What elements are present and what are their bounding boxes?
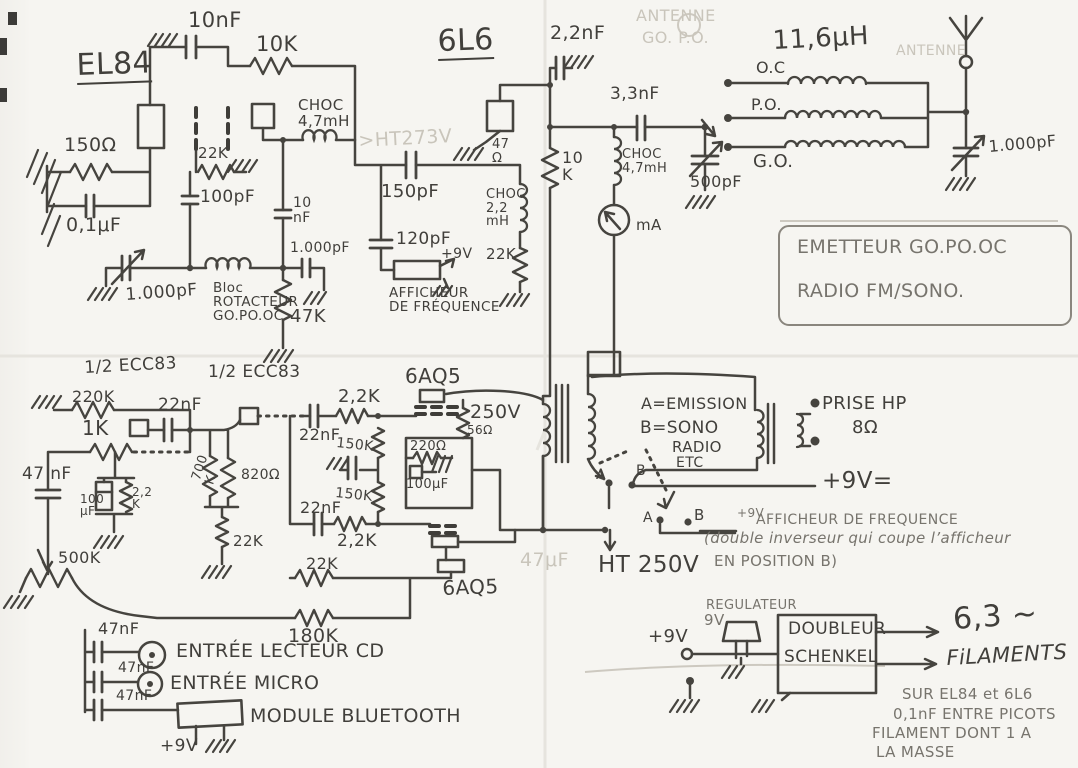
coil-symbols — [785, 77, 905, 147]
label-63v: 6,3 ∼ — [952, 598, 1038, 635]
ground-symbols — [946, 178, 975, 190]
speaker-transformer-primary — [757, 410, 764, 458]
label-choke-47mh-2: CHOC 4,7mH — [622, 148, 667, 175]
label-r150ohm: 150Ω — [64, 136, 116, 156]
label-r1k: 1K — [82, 418, 109, 439]
label-8ohm: 8Ω — [852, 419, 878, 438]
label-r820ohm: 820Ω — [241, 468, 280, 483]
coil-terminal — [724, 79, 732, 87]
label-po: P.O. — [751, 97, 782, 114]
label-note1: SUR EL84 et 6L6 — [902, 687, 1033, 703]
label-ghost-antenne-right: ANTENNE — [896, 44, 966, 59]
label-6aq5-1: 6AQ5 — [405, 366, 461, 387]
label-module-bt: MODULE BLUETOOTH — [250, 707, 461, 727]
label-plus9v-eq: +9V= — [822, 470, 893, 494]
label-afficheur: AFFICHEUR DE FRÉQUENCE — [389, 286, 500, 314]
afficheur-box — [394, 261, 440, 279]
label-c10nf2: 10 nF — [293, 196, 312, 225]
label-r47k: 47K — [290, 308, 326, 327]
title-box-line1: EMETTEUR GO.PO.OC — [797, 238, 1007, 258]
junction-dot — [602, 527, 608, 533]
ground-terminal — [686, 677, 694, 685]
output-transformer-secondary — [588, 394, 595, 459]
tube-plate-box — [252, 104, 274, 128]
label-coil-116uh: 11,6μH — [772, 23, 870, 55]
label-plus9v-bt: +9V — [160, 738, 198, 756]
label-6aq5-2: 6AQ5 — [442, 576, 499, 599]
label-choke-22mh: CHOC 2,2 mH — [486, 188, 526, 229]
label-r150k1: 150K — [335, 436, 374, 454]
tube-grid-box — [487, 101, 513, 131]
label-doubleur: DOUBLEUR — [788, 621, 886, 639]
label-prise-hp: PRISE HP — [822, 395, 907, 414]
label-c47nf1: 47nF — [98, 621, 139, 638]
label-r22k2: 22K — [306, 556, 338, 573]
label-switch-a1: A — [596, 468, 606, 483]
junction-dot — [280, 137, 286, 143]
label-choke-47mh: CHOC 4,7mH — [298, 98, 350, 129]
label-c100pf: 100pF — [200, 189, 255, 207]
label-ma-meter: mA — [636, 218, 662, 234]
hp-terminal — [811, 437, 820, 446]
label-ecc83-2: 1/2 ECC83 — [208, 364, 300, 382]
label-bloc-rotacteur: Bloc ROTACTEUR GO.PO.OC — [213, 281, 298, 323]
input-terminal — [682, 649, 692, 659]
label-pot500k: 500K — [58, 550, 101, 567]
label-r22k-6l6: 22K — [486, 247, 516, 263]
label-r47ohm: 47 Ω — [492, 138, 509, 165]
label-c22nf2: 22nF — [299, 427, 340, 444]
label-r22k-cath: 2,2 K — [132, 486, 152, 511]
label-r10k: 10K — [256, 34, 298, 56]
tube-plate-box — [420, 390, 444, 402]
label-250v: 250V — [470, 403, 521, 423]
ground-symbols — [206, 740, 235, 752]
label-c22nf3: 22nF — [300, 500, 341, 517]
schematic-drawing — [0, 0, 1078, 768]
title-box-line2: RADIO FM/SONO. — [797, 282, 964, 302]
label-c10nf: 10nF — [188, 10, 242, 32]
label-c22nf1: 22nF — [158, 397, 202, 415]
label-r220ohm: 220Ω — [410, 440, 446, 454]
label-c100uf-cath: 100 μF — [80, 493, 104, 518]
hp-terminal — [811, 399, 820, 408]
label-c100uf-fb: 100μF — [406, 478, 449, 492]
label-ht250v: HT 250V — [598, 554, 699, 578]
junction-dot — [611, 124, 617, 130]
coil-terminal — [724, 143, 732, 151]
switch-contact-a1 — [605, 479, 612, 486]
label-c47nf2: 47nF — [118, 661, 154, 676]
capacitor-symbols — [94, 642, 102, 720]
label-note-afficheur: AFFICHEUR DE FREQUENCE — [756, 513, 958, 528]
label-entree-micro: ENTRÉE MICRO — [170, 674, 319, 694]
junction-dot — [540, 527, 546, 533]
label-switch-a2: A — [643, 511, 653, 526]
label-c01uf: 0,1μF — [66, 216, 121, 236]
label-r22k-coup1: 2,2K — [338, 388, 380, 407]
paper-creases — [0, 0, 1078, 768]
junction-dot — [375, 521, 381, 527]
label-ghost-antenne-top: ANTENNE — [636, 8, 716, 25]
junction-dot — [963, 109, 969, 115]
ground-symbols — [670, 666, 774, 712]
tube-grid-box — [240, 408, 258, 424]
label-go: G.O. — [753, 153, 793, 172]
label-el84-title: EL84 — [76, 47, 153, 85]
coil-terminal — [724, 114, 732, 122]
switch-contact-a2 — [656, 516, 663, 523]
label-a-emission: A=EMISSION — [641, 396, 748, 413]
label-etc: ETC — [676, 456, 704, 471]
label-switch-b2: B — [694, 508, 705, 524]
label-note-position: EN POSITION B) — [714, 554, 837, 570]
label-c47nf-pre: 47 nF — [22, 466, 72, 484]
label-b-sono: B=SONO — [640, 420, 719, 438]
label-6l6-title: 6L6 — [437, 24, 494, 61]
capacitor-symbols — [954, 148, 978, 156]
label-radio: RADIO — [672, 440, 722, 456]
junction-dot — [702, 124, 709, 131]
label-r10k-6l6: 10 K — [562, 150, 583, 183]
tube-grid-box — [130, 420, 148, 436]
ma-meter — [599, 205, 629, 235]
label-r220k: 220K — [72, 389, 115, 406]
label-note-double: (double inverseur qui coupe l’afficheur — [704, 531, 1011, 547]
label-c500pf: 500pF — [690, 174, 742, 191]
junction-dot — [547, 124, 553, 130]
resistor-symbols — [413, 408, 469, 464]
junction-dot — [547, 82, 553, 88]
label-c22nf: 2,2nF — [550, 24, 605, 44]
junction-dot — [375, 413, 381, 419]
label-r22k: 22K — [198, 146, 228, 162]
bluetooth-module-box — [177, 700, 242, 727]
label-r56ohm: 56Ω — [467, 424, 493, 436]
speaker-transformer-secondary — [797, 414, 803, 447]
switch-contact-b1 — [628, 481, 635, 488]
regulator-component — [723, 622, 760, 641]
junction-dot — [187, 427, 193, 433]
meter-needle-icon — [605, 212, 620, 229]
scan-artifacts — [0, 12, 17, 102]
label-plus9v-afficheur: +9V — [441, 247, 472, 262]
label-r22k1: 22K — [233, 534, 263, 550]
label-r22k-coup2: 2,2K — [337, 533, 377, 551]
switch-contact-b2 — [684, 518, 691, 525]
junction-dot — [187, 265, 193, 271]
label-c150pf: 150pF — [381, 183, 439, 202]
label-9v: 9V — [704, 613, 725, 629]
junction-dot — [280, 265, 286, 271]
tube-box — [432, 536, 458, 547]
label-c47uf-ghost: 47μF — [520, 551, 569, 571]
tube-anode-box — [138, 105, 164, 148]
label-oc: O.C — [756, 60, 785, 77]
label-note3: FILAMENT DONT 1 A — [872, 726, 1031, 742]
tube-box — [438, 560, 464, 572]
label-c33nf: 3,3nF — [610, 86, 660, 104]
label-entree-cd: ENTRÉE LECTEUR CD — [176, 642, 384, 662]
label-switch-b1: B — [636, 464, 646, 479]
label-c1000pf-fixed: 1.000pF — [290, 241, 350, 256]
transformer-core — [556, 385, 568, 462]
label-c47nf3: 47nF — [116, 689, 152, 704]
label-schenkel: SCHENKEL — [784, 649, 877, 667]
label-ghost-gopo: GO. P.O. — [642, 30, 709, 47]
schematic-paper: EL84 10nF 10K CHOC 4,7mH 150Ω 22K 0,1μF … — [0, 0, 1078, 768]
label-plus9v-reg: +9V — [648, 628, 688, 647]
label-note4: LA MASSE — [876, 745, 955, 761]
grid-dash-dots — [134, 416, 304, 452]
label-note2: 0,1nF ENTRE PICOTS — [893, 707, 1056, 723]
